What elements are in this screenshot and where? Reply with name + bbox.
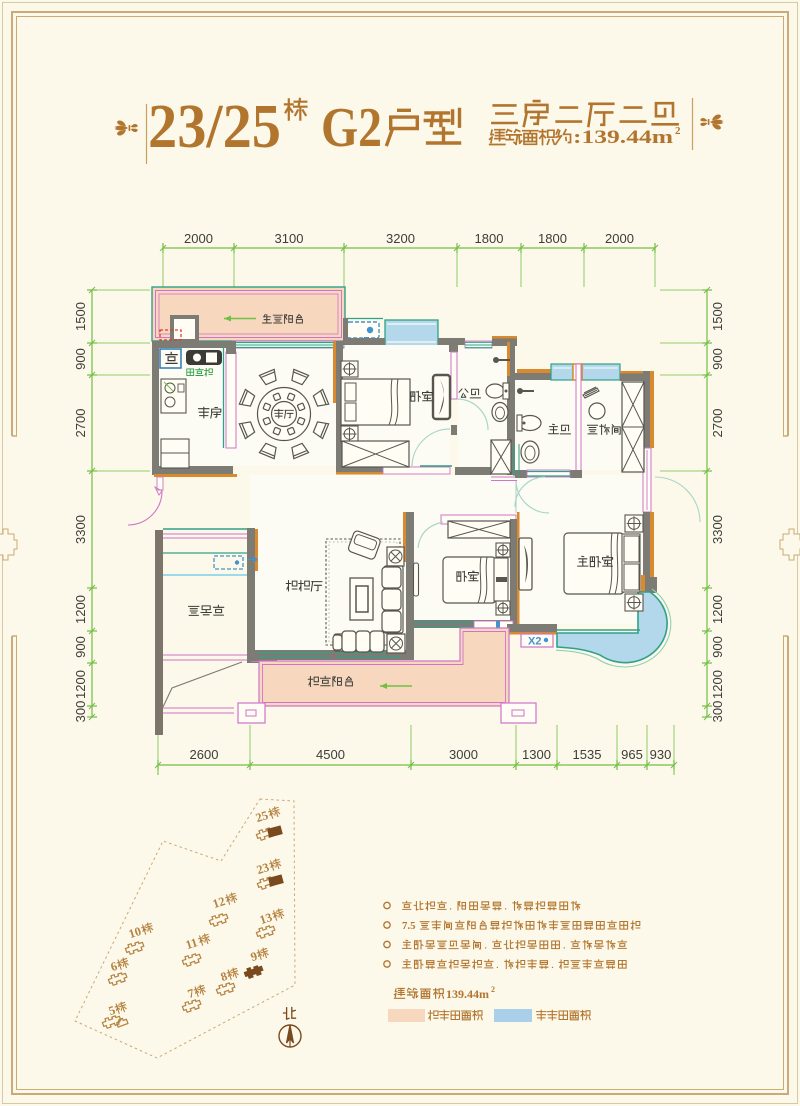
svg-text:3300: 3300: [710, 515, 725, 544]
svg-text:3200: 3200: [386, 231, 415, 246]
svg-text:2600: 2600: [190, 747, 219, 762]
svg-text:1800: 1800: [475, 231, 504, 246]
svg-text:2000: 2000: [184, 231, 213, 246]
svg-text:1200: 1200: [710, 595, 725, 624]
svg-text:300: 300: [710, 701, 725, 723]
svg-text:3300: 3300: [73, 515, 88, 544]
svg-text:2000: 2000: [605, 231, 634, 246]
svg-text:930: 930: [650, 747, 672, 762]
svg-text::139.44m: :139.44m: [573, 127, 673, 148]
svg-text:3000: 3000: [449, 747, 478, 762]
svg-text:965: 965: [621, 747, 643, 762]
svg-text:G2: G2: [321, 97, 382, 159]
svg-text:3100: 3100: [275, 231, 304, 246]
svg-text:1200: 1200: [73, 595, 88, 624]
svg-text:1200: 1200: [73, 670, 88, 699]
svg-text:139.44m: 139.44m: [446, 987, 489, 1001]
svg-text:7.5: 7.5: [402, 920, 416, 932]
svg-text:4500: 4500: [316, 747, 345, 762]
svg-text:1200: 1200: [710, 670, 725, 699]
svg-text:23/25: 23/25: [148, 93, 281, 161]
svg-text:1535: 1535: [573, 747, 602, 762]
svg-text:1300: 1300: [522, 747, 551, 762]
svg-text:X2: X2: [528, 636, 541, 648]
svg-text:1500: 1500: [710, 302, 725, 331]
svg-text:2700: 2700: [73, 409, 88, 438]
svg-text:300: 300: [73, 701, 88, 723]
svg-text:2700: 2700: [710, 409, 725, 438]
svg-text:2: 2: [491, 985, 495, 994]
svg-text:900: 900: [73, 348, 88, 370]
svg-text:900: 900: [710, 348, 725, 370]
svg-text:900: 900: [710, 636, 725, 658]
svg-text:900: 900: [73, 636, 88, 658]
svg-text:2: 2: [675, 125, 681, 137]
svg-text:1800: 1800: [538, 231, 567, 246]
svg-text:1500: 1500: [73, 302, 88, 331]
